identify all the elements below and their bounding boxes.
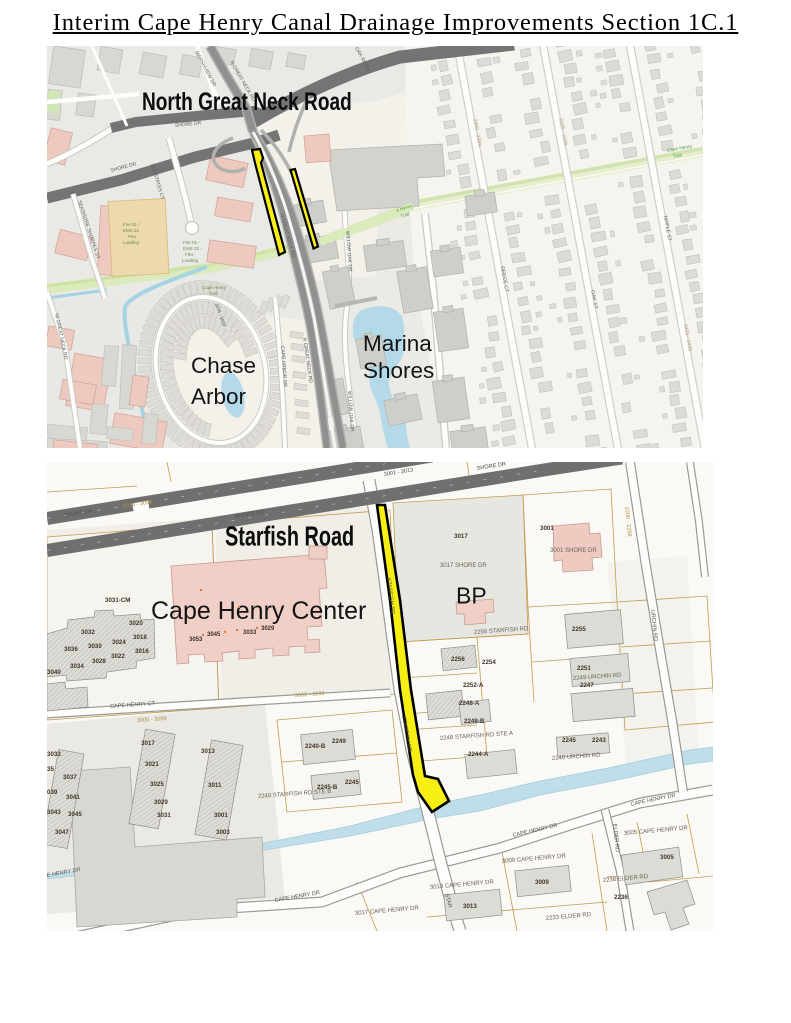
svg-text:2247: 2247 <box>580 682 594 689</box>
svg-text:2244-A: 2244-A <box>468 751 489 758</box>
svg-text:EMS 22: EMS 22 <box>123 228 140 233</box>
svg-text:3028: 3028 <box>92 658 106 665</box>
svg-text:2245: 2245 <box>562 737 576 744</box>
svg-text:3016: 3016 <box>135 648 149 655</box>
svg-text:3043: 3043 <box>47 809 61 816</box>
svg-text:3036: 3036 <box>64 646 78 653</box>
svg-text:Starfish Road: Starfish Road <box>225 521 354 552</box>
svg-text:2249: 2249 <box>332 738 346 745</box>
svg-text:Arbor: Arbor <box>191 384 247 409</box>
svg-text:3029: 3029 <box>261 626 275 632</box>
svg-text:Cape Henry Center: Cape Henry Center <box>151 597 366 625</box>
svg-text:2254: 2254 <box>482 659 496 666</box>
svg-text:3001: 3001 <box>214 812 228 819</box>
svg-text:3020: 3020 <box>129 620 143 627</box>
svg-text:2251: 2251 <box>577 665 591 672</box>
svg-text:2256: 2256 <box>451 656 465 663</box>
svg-text:Chase: Chase <box>191 353 256 378</box>
svg-text:2255: 2255 <box>572 626 586 633</box>
svg-text:Flex: Flex <box>185 252 194 257</box>
svg-text:3040: 3040 <box>47 669 61 676</box>
svg-text:3003: 3003 <box>216 829 230 836</box>
svg-text:3013: 3013 <box>463 903 477 910</box>
svg-text:3017: 3017 <box>141 740 155 747</box>
svg-text:3041: 3041 <box>66 794 80 801</box>
svg-text:3001: 3001 <box>540 525 554 532</box>
svg-text:3037: 3037 <box>63 774 77 781</box>
svg-text:35: 35 <box>47 766 54 773</box>
svg-text:3053: 3053 <box>189 637 203 643</box>
svg-text:3047: 3047 <box>55 829 69 836</box>
svg-text:3024: 3024 <box>112 639 126 646</box>
svg-text:3033: 3033 <box>243 630 257 636</box>
svg-text:2248-B: 2248-B <box>464 718 485 725</box>
svg-text:Trail: Trail <box>209 291 218 296</box>
svg-text:3031: 3031 <box>157 812 171 819</box>
svg-text:Shores: Shores <box>363 358 434 383</box>
svg-text:3001 SHORE DR: 3001 SHORE DR <box>550 548 597 554</box>
svg-text:2252-A: 2252-A <box>463 682 484 689</box>
svg-text:3033: 3033 <box>47 751 61 758</box>
svg-text:EMS 22 -: EMS 22 - <box>183 246 202 251</box>
svg-text:3018: 3018 <box>133 634 147 641</box>
svg-text:2243: 2243 <box>592 737 606 744</box>
svg-text:BP: BP <box>456 583 487 609</box>
svg-text:3030: 3030 <box>88 643 102 650</box>
svg-text:3013: 3013 <box>201 748 215 755</box>
svg-text:3009: 3009 <box>535 879 549 886</box>
svg-text:2245: 2245 <box>345 779 359 786</box>
svg-text:3034: 3034 <box>70 663 84 670</box>
svg-text:3045: 3045 <box>207 632 221 638</box>
svg-text:Marina: Marina <box>363 331 432 356</box>
svg-text:039: 039 <box>47 789 58 796</box>
svg-text:2240-B: 2240-B <box>305 743 326 750</box>
svg-text:Loading: Loading <box>182 258 199 263</box>
svg-text:Fire 01 /: Fire 01 / <box>123 222 140 227</box>
svg-text:Cape Henry: Cape Henry <box>202 285 227 290</box>
svg-text:3011: 3011 <box>208 782 222 789</box>
svg-text:3017 SHORE DR: 3017 SHORE DR <box>440 563 487 569</box>
svg-text:3031-CM: 3031-CM <box>105 597 130 604</box>
svg-text:3022: 3022 <box>111 653 125 660</box>
svg-text:2248-A: 2248-A <box>459 700 480 707</box>
svg-text:- Flex: - Flex <box>125 234 137 239</box>
svg-text:3005: 3005 <box>660 854 674 861</box>
svg-text:3025: 3025 <box>150 781 164 788</box>
svg-text:3021: 3021 <box>145 761 159 768</box>
svg-text:Fire 01 -: Fire 01 - <box>183 240 200 245</box>
svg-text:3029: 3029 <box>154 799 168 806</box>
svg-text:3032: 3032 <box>81 629 95 636</box>
svg-text:3045: 3045 <box>68 811 82 818</box>
svg-text:Loading: Loading <box>123 240 140 245</box>
svg-text:2236: 2236 <box>614 894 628 901</box>
svg-text:3017: 3017 <box>454 533 468 540</box>
